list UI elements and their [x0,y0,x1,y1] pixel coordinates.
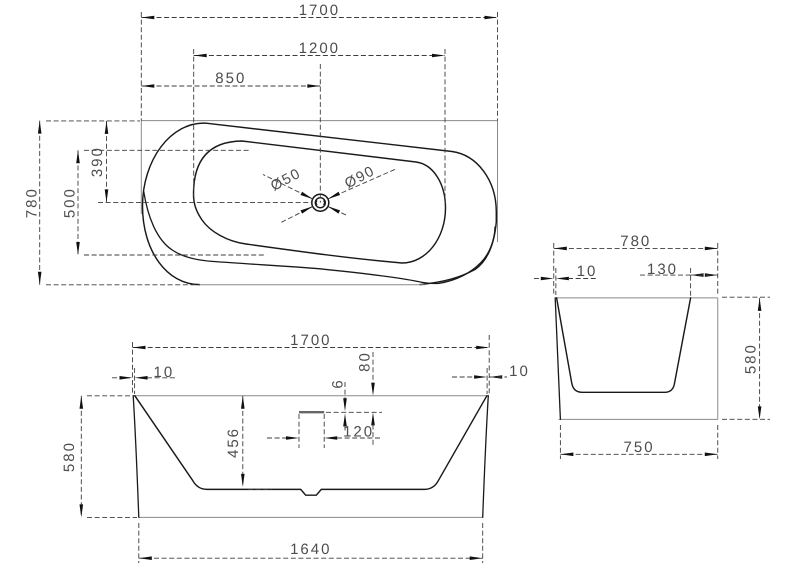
svg-text:1700: 1700 [299,2,340,19]
svg-text:780: 780 [620,233,651,250]
svg-text:780: 780 [23,187,40,218]
svg-text:Ø90: Ø90 [342,163,378,192]
svg-text:580: 580 [742,343,759,374]
svg-text:1200: 1200 [299,40,340,57]
svg-text:130: 130 [647,261,678,278]
svg-text:750: 750 [624,439,655,456]
svg-text:Ø50: Ø50 [268,166,304,195]
svg-text:10: 10 [509,363,530,380]
svg-text:6: 6 [329,378,346,388]
svg-text:500: 500 [61,187,78,218]
svg-text:580: 580 [61,441,78,472]
svg-text:120: 120 [343,423,374,440]
svg-text:850: 850 [215,70,246,87]
svg-text:456: 456 [225,427,242,458]
svg-text:390: 390 [89,146,106,177]
svg-text:10: 10 [154,364,175,381]
svg-text:1700: 1700 [290,332,331,349]
svg-text:80: 80 [356,351,373,372]
svg-text:1640: 1640 [290,541,331,558]
svg-text:10: 10 [577,263,598,280]
